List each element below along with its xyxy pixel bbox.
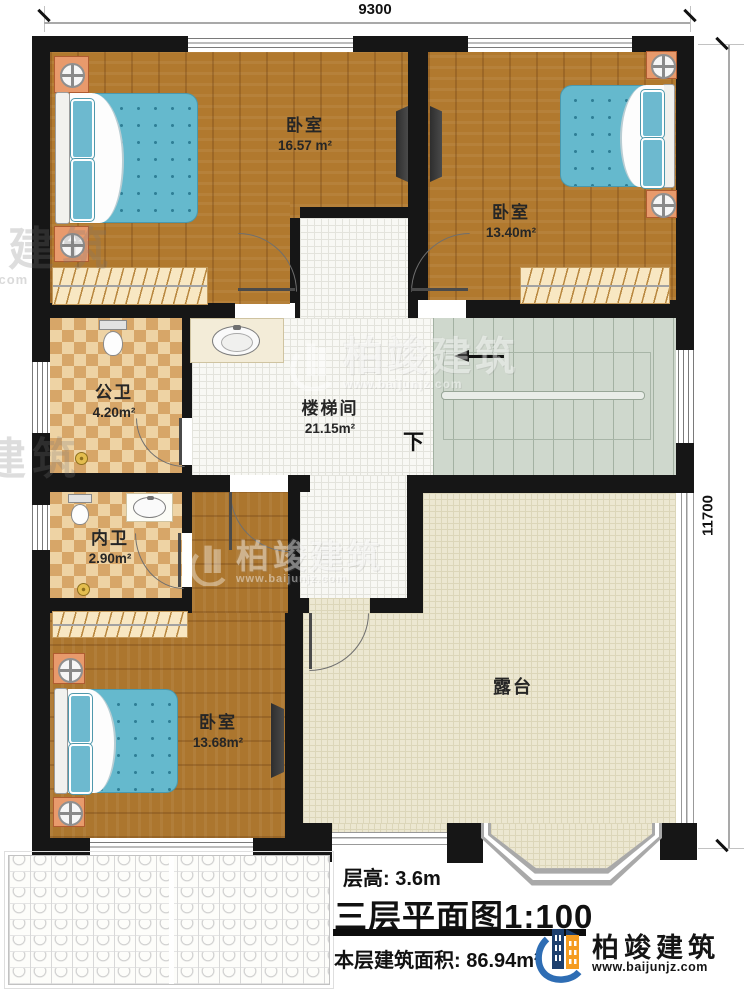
room-area: 16.57 m² xyxy=(250,137,360,155)
lamp-icon xyxy=(651,193,676,218)
nightstand xyxy=(54,226,89,262)
bed-headboard xyxy=(54,688,68,794)
hall-corridor-down xyxy=(300,475,407,598)
nightstand xyxy=(53,653,85,684)
sink-basin xyxy=(133,497,166,518)
door-leaf xyxy=(309,613,312,669)
nightstand xyxy=(646,51,677,79)
bed-pillow xyxy=(641,90,664,138)
wardrobe xyxy=(52,267,208,305)
wall-segment xyxy=(408,300,418,318)
door-leaf xyxy=(178,533,181,587)
terrace-door-threshold xyxy=(309,598,370,613)
room-label-bedroom-2: 卧室 13.40m² xyxy=(455,202,567,242)
dim-line-right xyxy=(728,45,730,848)
nightstand xyxy=(54,56,89,93)
door-leaf xyxy=(229,492,232,550)
room-name: 公卫 xyxy=(62,382,166,404)
tv-panel xyxy=(430,106,442,182)
wall-segment xyxy=(32,36,188,52)
dim-extension xyxy=(698,848,744,849)
wall-segment xyxy=(32,550,50,838)
dim-tick xyxy=(715,839,728,852)
room-label-inner-bath: 内卫 2.90m² xyxy=(58,528,162,568)
room-area: 21.15m² xyxy=(270,420,390,438)
window xyxy=(32,505,50,550)
room-area: 13.40m² xyxy=(455,224,567,242)
wall-segment xyxy=(182,492,192,533)
wall-segment xyxy=(32,473,192,492)
wall-segment xyxy=(300,598,309,613)
wall-segment xyxy=(285,613,303,856)
wall-segment xyxy=(288,475,310,492)
terrace-floor-strip xyxy=(332,823,447,832)
bed-headboard xyxy=(55,92,70,224)
room-label-public-bath: 公卫 4.20m² xyxy=(62,382,166,422)
dim-line-top xyxy=(44,22,690,24)
lamp-icon xyxy=(58,658,83,683)
window xyxy=(32,362,50,433)
stairs-down-label: 下 xyxy=(403,426,424,456)
floor-drain-icon xyxy=(75,452,88,465)
wall-segment xyxy=(353,36,468,52)
roof-tiles xyxy=(8,855,330,985)
toilet-bowl xyxy=(71,504,89,525)
roof-divider xyxy=(169,856,174,984)
company-logo-url: www.baijunjz.com xyxy=(592,960,708,974)
door-leaf xyxy=(411,288,468,291)
lamp-icon xyxy=(60,63,85,88)
room-label-bedroom-1: 卧室 16.57 m² xyxy=(250,115,360,155)
bed-pillow xyxy=(69,694,92,744)
window xyxy=(468,38,632,52)
door-leaf xyxy=(238,288,295,291)
wall-segment xyxy=(420,475,694,493)
lamp-icon xyxy=(60,233,85,258)
wall-segment xyxy=(300,207,420,218)
lamp-icon xyxy=(651,54,676,79)
room-label-terrace: 露台 xyxy=(463,676,563,699)
room-name: 卧室 xyxy=(163,712,273,734)
room-name: 卧室 xyxy=(455,202,567,224)
terrace-column xyxy=(447,823,483,863)
dim-value-top: 9300 xyxy=(340,1,410,18)
terrace-railing-right xyxy=(681,493,694,823)
tv-panel xyxy=(396,106,408,182)
wall-segment xyxy=(295,303,300,318)
stairs-arrow-tail xyxy=(466,355,504,358)
stairs-center-stringer xyxy=(441,391,645,400)
door-leaf xyxy=(179,418,182,465)
bed-pillow xyxy=(71,99,94,159)
room-name: 露台 xyxy=(463,676,563,699)
floor-plan-page: 下 xyxy=(0,0,750,989)
wall-segment xyxy=(370,598,407,613)
terrace-railing-bottom xyxy=(332,832,447,845)
wall-segment xyxy=(32,838,90,856)
room-label-stairwell: 楼梯间 21.15m² xyxy=(270,398,390,438)
room-name: 内卫 xyxy=(58,528,162,550)
wall-segment xyxy=(182,475,230,492)
room-name: 卧室 xyxy=(250,115,360,137)
floor-area-label: 本层建筑面积: 86.94m² xyxy=(334,944,541,973)
toilet-tank xyxy=(68,494,92,503)
faucet-icon xyxy=(147,496,154,500)
room-area: 13.68m² xyxy=(163,734,273,752)
wardrobe xyxy=(52,611,188,638)
floor-drain-icon xyxy=(77,583,90,596)
window xyxy=(90,842,253,855)
company-logo-icon xyxy=(533,920,589,984)
room-area: 4.20m² xyxy=(62,404,166,422)
bed-pillow xyxy=(641,138,664,188)
terrace-column xyxy=(660,823,697,860)
nightstand xyxy=(646,190,677,218)
bed-pillow xyxy=(71,159,94,221)
hall-corridor-top xyxy=(300,218,408,318)
room-area: 2.90m² xyxy=(58,550,162,568)
toilet-bowl xyxy=(103,331,123,356)
nightstand xyxy=(53,797,85,827)
sink-basin-inner xyxy=(221,333,253,352)
floor-height-label: 层高: 3.6m xyxy=(343,862,441,891)
room-label-bedroom-3: 卧室 13.68m² xyxy=(163,712,273,752)
wall-segment xyxy=(32,433,50,505)
dim-value-right: 11700 xyxy=(700,481,717,551)
wardrobe xyxy=(520,267,670,304)
room-name: 楼梯间 xyxy=(270,398,390,420)
window xyxy=(188,38,353,52)
toilet-tank xyxy=(99,320,127,330)
window xyxy=(678,350,694,443)
bed-pillow xyxy=(69,744,92,794)
lamp-icon xyxy=(58,801,83,826)
terrace-floor-main xyxy=(423,493,676,823)
faucet-icon xyxy=(233,325,241,330)
wall-segment xyxy=(407,475,423,613)
wall-segment xyxy=(32,303,235,318)
